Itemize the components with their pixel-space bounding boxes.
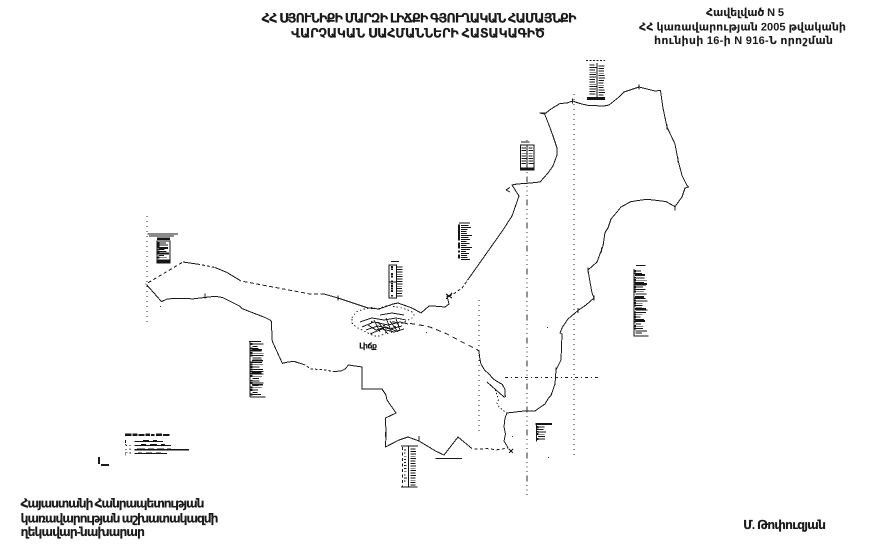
svg-text:Լիճք: Լիճք: [359, 342, 377, 351]
svg-text:ղեկավար-նախարար: ղեկավար-նախարար: [21, 525, 146, 539]
svg-text:ՎԱՐՉԱԿԱՆ ՍԱՀՄԱՆՆԵՐԻ ՀԱՏԱԿԱԳԻԾ: ՎԱՐՉԱԿԱՆ ՍԱՀՄԱՆՆԵՐԻ ՀԱՏԱԿԱԳԻԾ: [291, 26, 545, 41]
svg-text:ՀՀ կառավարության 2005 թվականի: ՀՀ կառավարության 2005 թվականի: [639, 22, 846, 34]
svg-text:Մ. Թոփուզյան: Մ. Թոփուզյան: [743, 518, 826, 532]
svg-text:ՀՀ ՍՅՈՒՆԻՔԻ ՄԱՐԶԻ ԼԻՃՔԻ ԳՅՈՒՂԱ: ՀՀ ՍՅՈՒՆԻՔԻ ՄԱՐԶԻ ԼԻՃՔԻ ԳՅՈՒՂԱԿԱՆ ՀԱՄԱՅՆ…: [262, 11, 577, 26]
svg-text:Հավելված N 5: Հավելված N 5: [706, 7, 784, 19]
svg-text:Հայաստանի Հանրապետության: Հայաստանի Հանրապետության: [21, 497, 205, 511]
svg-text:կառավարության աշխատակազմի: կառավարության աշխատակազմի: [21, 511, 219, 525]
svg-text:հունիսի 16-ի N 916-Ն որոշման: հունիսի 16-ի N 916-Ն որոշման: [654, 35, 833, 47]
